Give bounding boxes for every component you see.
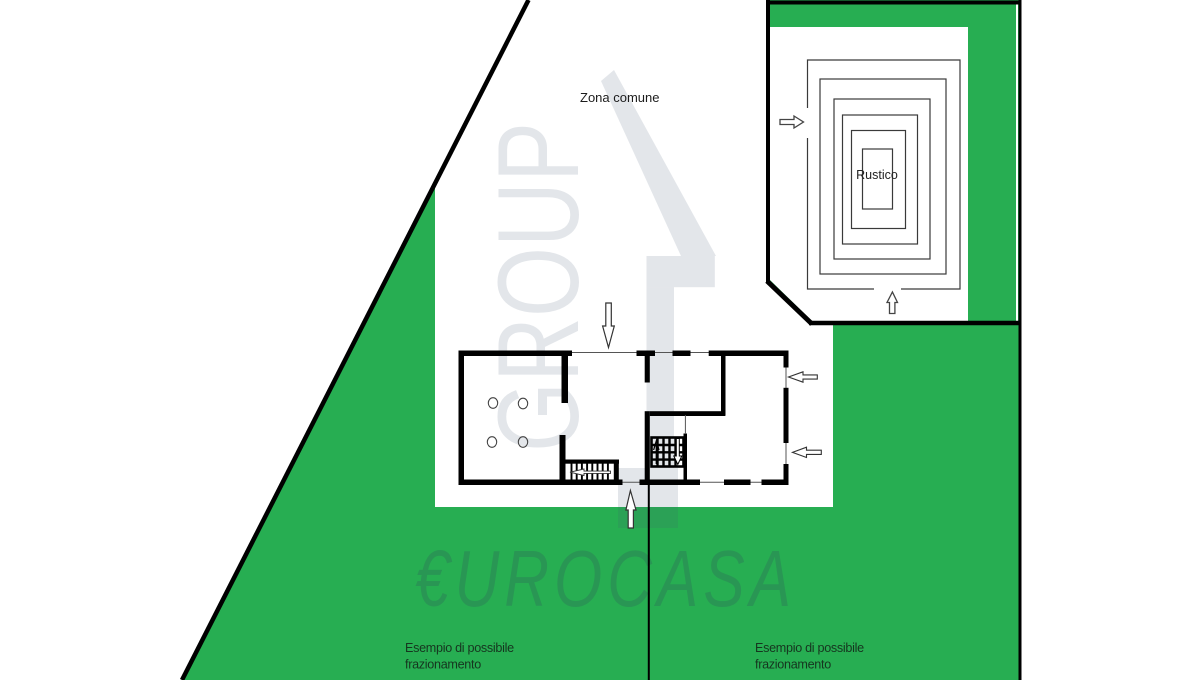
svg-text:€UROCASA: €UROCASA: [415, 534, 796, 623]
svg-text:frazionamento: frazionamento: [755, 658, 831, 672]
svg-text:GROUP: GROUP: [473, 122, 602, 452]
svg-text:Esempio di possibile: Esempio di possibile: [755, 641, 864, 655]
svg-text:Rustico: Rustico: [856, 168, 898, 182]
svg-text:frazionamento: frazionamento: [405, 658, 481, 672]
svg-text:Zona comune: Zona comune: [580, 90, 660, 105]
svg-text:Esempio di possibile: Esempio di possibile: [405, 641, 514, 655]
